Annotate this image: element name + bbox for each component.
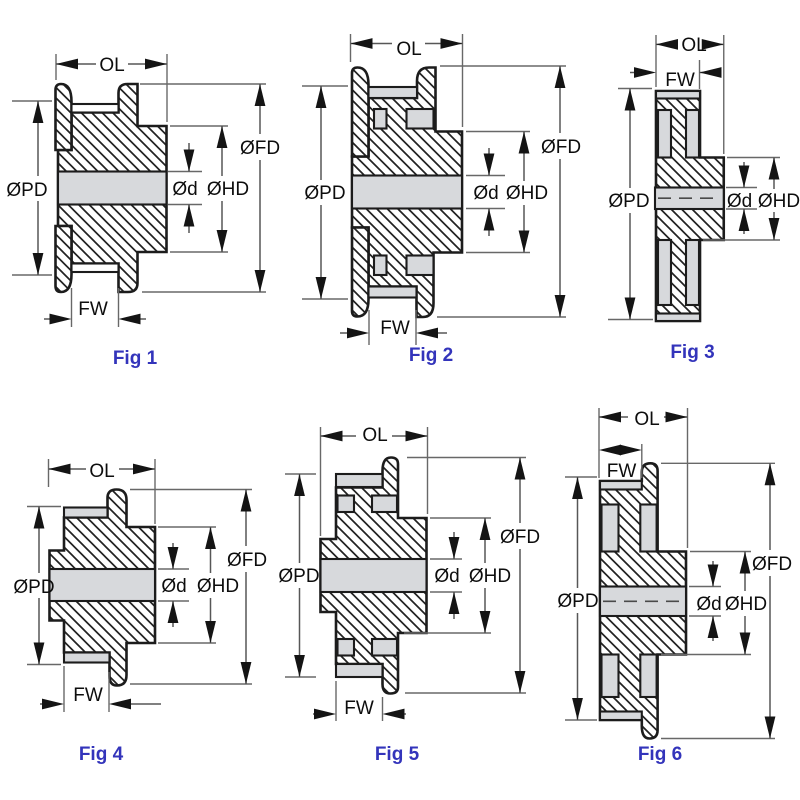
svg-text:Ød: Ød <box>434 566 459 587</box>
svg-text:FW: FW <box>380 318 410 339</box>
svg-text:OL: OL <box>634 409 659 430</box>
svg-text:FW: FW <box>607 461 637 482</box>
svg-text:OL: OL <box>99 55 124 76</box>
svg-text:Ød: Ød <box>172 179 197 200</box>
svg-text:Ød: Ød <box>727 191 752 212</box>
svg-text:ØPD: ØPD <box>304 183 345 204</box>
svg-text:ØFD: ØFD <box>227 550 267 571</box>
svg-text:ØPD: ØPD <box>6 180 47 201</box>
svg-text:OL: OL <box>89 461 114 482</box>
svg-text:ØFD: ØFD <box>541 137 581 158</box>
svg-text:OL: OL <box>362 425 387 446</box>
svg-text:OL: OL <box>681 35 706 56</box>
svg-text:ØPD: ØPD <box>608 191 649 212</box>
svg-text:FW: FW <box>665 70 695 91</box>
svg-text:Ød: Ød <box>696 594 721 615</box>
svg-text:ØPD: ØPD <box>13 577 54 598</box>
svg-text:FW: FW <box>344 698 374 719</box>
svg-text:ØPD: ØPD <box>278 566 319 587</box>
svg-text:ØHD: ØHD <box>207 179 249 200</box>
svg-text:ØFD: ØFD <box>240 138 280 159</box>
svg-text:ØFD: ØFD <box>752 554 792 575</box>
svg-text:Fig 5: Fig 5 <box>375 744 420 765</box>
svg-text:ØHD: ØHD <box>469 566 511 587</box>
svg-text:Fig 4: Fig 4 <box>79 744 124 765</box>
svg-text:ØHD: ØHD <box>758 191 800 212</box>
svg-text:OL: OL <box>396 39 421 60</box>
svg-text:Fig 2: Fig 2 <box>409 345 453 366</box>
svg-text:ØHD: ØHD <box>506 183 548 204</box>
svg-text:ØPD: ØPD <box>557 591 598 612</box>
svg-text:ØHD: ØHD <box>197 576 239 597</box>
svg-text:Fig 6: Fig 6 <box>638 744 682 765</box>
svg-text:ØFD: ØFD <box>500 527 540 548</box>
svg-text:Ød: Ød <box>473 183 498 204</box>
svg-text:Fig 3: Fig 3 <box>670 342 714 363</box>
svg-text:Ød: Ød <box>161 576 186 597</box>
svg-text:ØHD: ØHD <box>725 594 767 615</box>
svg-text:FW: FW <box>78 299 108 320</box>
svg-text:Fig 1: Fig 1 <box>113 348 158 369</box>
svg-text:FW: FW <box>73 685 103 706</box>
